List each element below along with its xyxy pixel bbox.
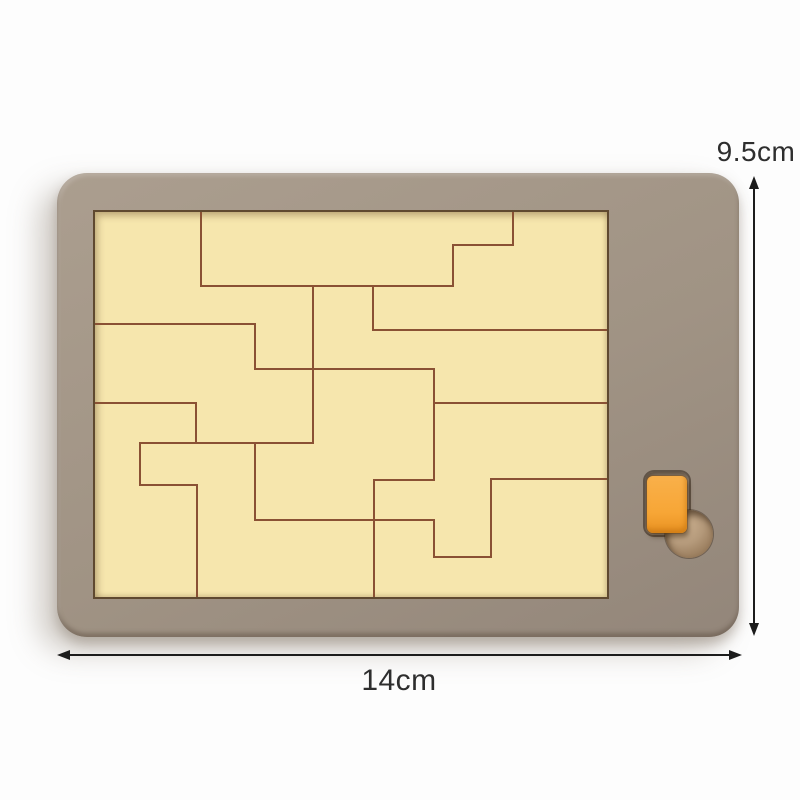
arrow-up-icon [749, 176, 759, 189]
product-photo-stage: 9.5cm 14cm [0, 0, 800, 800]
height-dimension-line [753, 186, 755, 626]
width-dimension-line [68, 654, 731, 656]
width-dimension-label: 14cm [338, 664, 460, 698]
arrow-left-icon [57, 650, 70, 660]
arrow-right-icon [729, 650, 742, 660]
arrow-down-icon [749, 623, 759, 636]
puzzle-tray [95, 212, 607, 597]
puzzle-lines-svg [95, 212, 607, 597]
height-dimension-label: 9.5cm [698, 136, 800, 168]
orange-puzzle-piece [647, 476, 687, 533]
puzzle-board [57, 173, 739, 637]
